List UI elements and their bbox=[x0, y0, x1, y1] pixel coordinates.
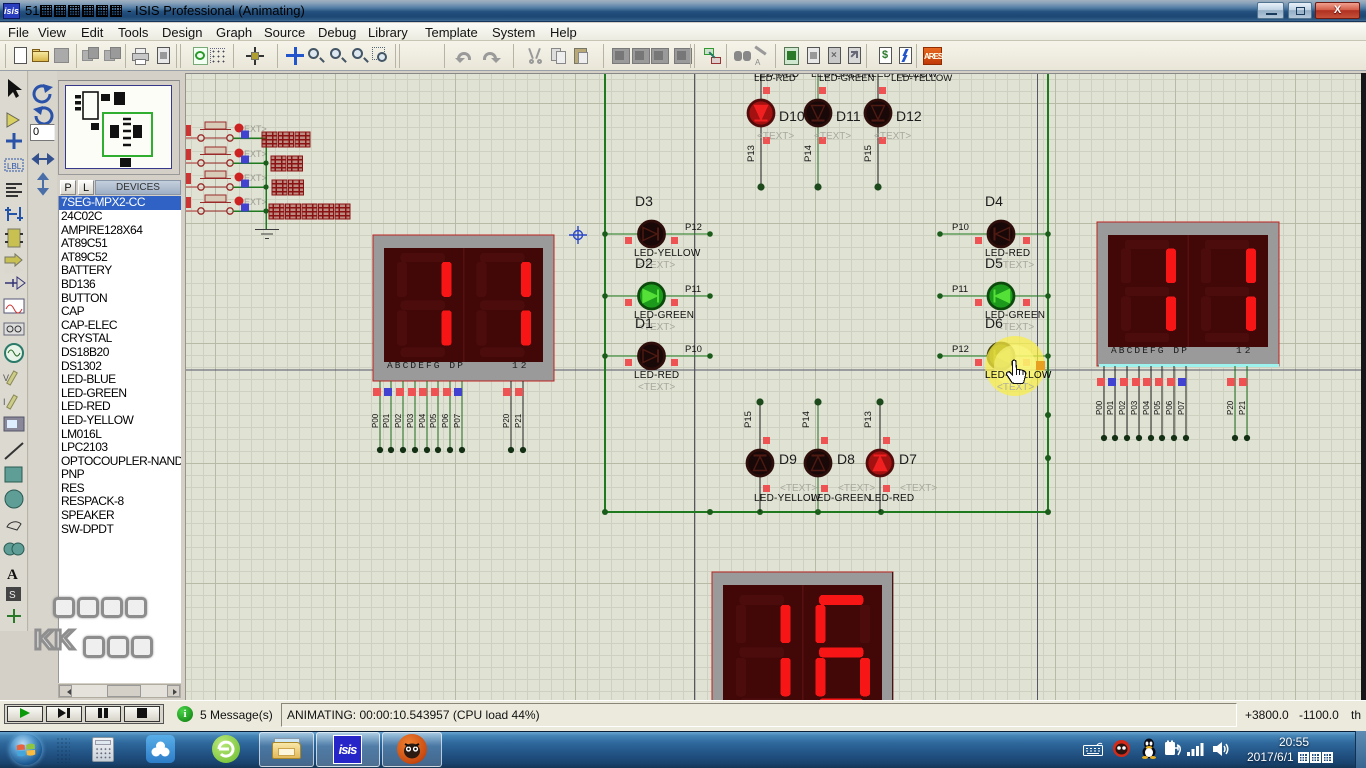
svg-text:P11: P11 bbox=[685, 284, 701, 295]
svg-text:D8: D8 bbox=[837, 451, 855, 467]
svg-text:D7: D7 bbox=[899, 451, 917, 467]
svg-text:P15: P15 bbox=[743, 411, 754, 428]
svg-text:P05: P05 bbox=[429, 413, 438, 428]
svg-text:P10: P10 bbox=[685, 344, 702, 355]
svg-text:<TEXT>: <TEXT> bbox=[900, 483, 937, 494]
svg-text:P02: P02 bbox=[394, 413, 403, 428]
svg-text:P06: P06 bbox=[441, 413, 450, 428]
svg-text:P03: P03 bbox=[1130, 400, 1139, 415]
svg-text:P21: P21 bbox=[514, 413, 523, 428]
svg-text:<TEXT>: <TEXT> bbox=[638, 382, 675, 393]
svg-text:P10: P10 bbox=[952, 222, 969, 233]
svg-text:D2: D2 bbox=[635, 255, 653, 271]
svg-text:D9: D9 bbox=[779, 451, 797, 467]
svg-text:P01: P01 bbox=[1106, 400, 1115, 415]
svg-text:I: I bbox=[3, 397, 6, 407]
svg-text:LED-GREEN: LED-GREEN bbox=[819, 74, 875, 84]
svg-text:A: A bbox=[7, 567, 18, 583]
svg-text:P01: P01 bbox=[382, 413, 391, 428]
svg-text:D4: D4 bbox=[985, 193, 1003, 209]
svg-text:D11: D11 bbox=[836, 108, 861, 124]
svg-text:<TEXT>: <TEXT> bbox=[814, 131, 851, 142]
svg-text:P21: P21 bbox=[1238, 400, 1247, 415]
svg-text:<TEXT>: <TEXT> bbox=[757, 131, 794, 142]
svg-text:P11: P11 bbox=[952, 284, 968, 295]
svg-text:P00: P00 bbox=[1095, 400, 1104, 415]
svg-text:P02: P02 bbox=[1118, 400, 1127, 415]
svg-text:P04: P04 bbox=[418, 413, 427, 428]
svg-text:P03: P03 bbox=[406, 413, 415, 428]
svg-text:LED-YELLOW: LED-YELLOW bbox=[891, 74, 952, 84]
svg-text:D12: D12 bbox=[896, 108, 922, 124]
svg-text:P20: P20 bbox=[1226, 400, 1235, 415]
svg-text:P14: P14 bbox=[801, 411, 812, 428]
svg-text:D1: D1 bbox=[635, 315, 653, 331]
svg-text:D10: D10 bbox=[779, 108, 805, 124]
svg-text:P12: P12 bbox=[952, 344, 969, 355]
svg-text:ABCDEFG DP: ABCDEFG DP bbox=[1111, 345, 1189, 356]
svg-text:P00: P00 bbox=[371, 413, 380, 428]
svg-text:P12: P12 bbox=[685, 222, 702, 233]
svg-text:ABCDEFG DP: ABCDEFG DP bbox=[387, 360, 465, 371]
svg-text:P07: P07 bbox=[453, 413, 462, 428]
svg-text:P07: P07 bbox=[1177, 400, 1186, 415]
svg-text:P05: P05 bbox=[1153, 400, 1162, 415]
svg-text:P04: P04 bbox=[1142, 400, 1151, 415]
svg-text:LED-GREEN: LED-GREEN bbox=[811, 493, 871, 504]
svg-text:P13: P13 bbox=[746, 145, 757, 162]
svg-text:LED-RED: LED-RED bbox=[754, 74, 796, 84]
svg-text:12: 12 bbox=[1236, 345, 1253, 356]
svg-text:D5: D5 bbox=[985, 255, 1003, 271]
svg-text:LBL: LBL bbox=[7, 162, 22, 171]
svg-text:LED-RED: LED-RED bbox=[869, 493, 914, 504]
svg-text:D3: D3 bbox=[635, 193, 653, 209]
svg-text:LED-RED: LED-RED bbox=[634, 370, 679, 381]
svg-text:P13: P13 bbox=[863, 411, 874, 428]
svg-text:P20: P20 bbox=[502, 413, 511, 428]
svg-text:P14: P14 bbox=[803, 145, 814, 162]
svg-text:P15: P15 bbox=[863, 145, 874, 162]
svg-text:S: S bbox=[9, 590, 16, 601]
svg-text:<TEXT>: <TEXT> bbox=[874, 131, 911, 142]
svg-text:D6: D6 bbox=[985, 315, 1003, 331]
svg-text:12: 12 bbox=[512, 360, 529, 371]
svg-text:P06: P06 bbox=[1165, 400, 1174, 415]
